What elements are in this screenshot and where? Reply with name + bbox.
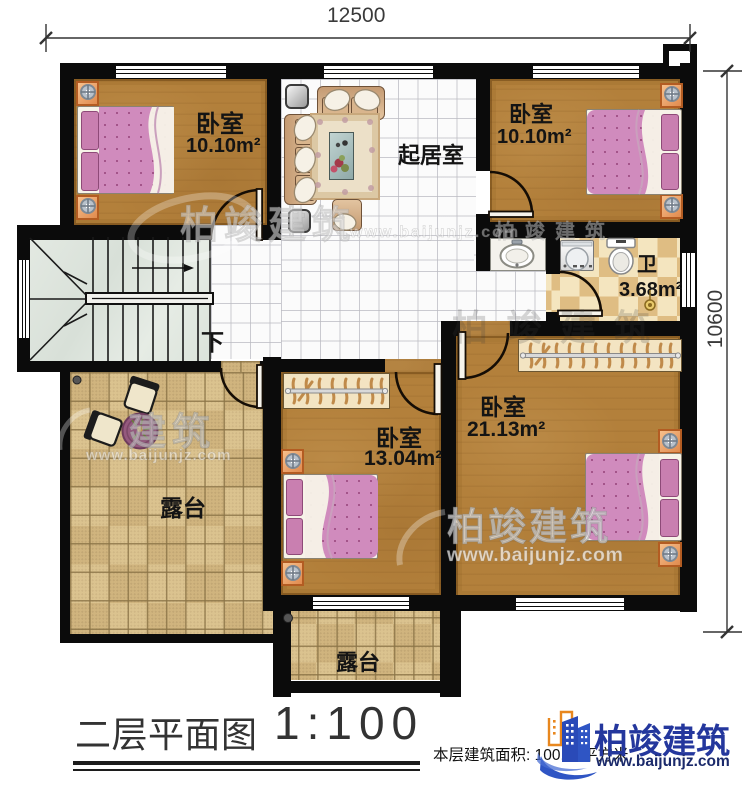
svg-text:柏竣建筑: 柏竣建筑 <box>447 507 611 549</box>
svg-text:柏竣建筑: 柏竣建筑 <box>180 205 356 247</box>
svg-text:www.baijunjz.com: www.baijunjz.com <box>446 544 623 566</box>
svg-text:www.baijunjz.com: www.baijunjz.com <box>85 447 231 464</box>
svg-text:柏竣建筑: 柏竣建筑 <box>495 219 615 243</box>
svg-text:柏竣建筑: 柏竣建筑 <box>452 307 668 348</box>
